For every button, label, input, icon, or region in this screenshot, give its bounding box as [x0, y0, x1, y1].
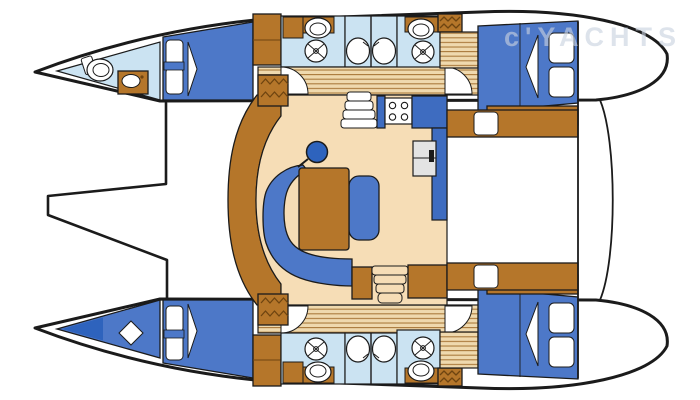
catamaran-floor-plan: c'YACHTS	[0, 0, 700, 400]
pillow	[166, 306, 183, 332]
shower-compartments-starboard	[345, 16, 397, 67]
forward-crossbeam	[48, 103, 167, 298]
pillow-strap	[164, 62, 184, 70]
cabin-entry-floor	[440, 32, 478, 68]
shower-tray	[373, 336, 396, 362]
shower-tray	[347, 336, 370, 362]
cockpit-step	[474, 265, 498, 288]
pillow	[549, 303, 574, 333]
pillow	[549, 337, 574, 367]
sink-icon	[305, 338, 327, 360]
galley-counter	[377, 96, 385, 128]
sink-icon	[412, 41, 434, 63]
saloon	[228, 75, 447, 325]
hull-steps-hatch	[438, 368, 462, 386]
pillow	[549, 67, 574, 97]
galley-counter	[412, 96, 447, 128]
step-cabinet	[408, 265, 447, 298]
shower-tray	[373, 38, 396, 64]
vanity-cabinet	[283, 362, 303, 383]
step-cabinet	[352, 267, 372, 299]
pillow	[166, 68, 183, 94]
fridge-icon	[413, 141, 436, 176]
chaise-seat	[349, 176, 379, 240]
shower-compartments-port	[345, 333, 397, 384]
hull-steps-hatch	[438, 14, 462, 32]
hull-access-steps-port	[258, 294, 288, 325]
mid-head-starboard-forward	[281, 16, 345, 67]
sink-icon	[412, 337, 434, 359]
pillow-strap	[164, 330, 184, 338]
aft-platform-curve	[600, 100, 613, 300]
hull-access-steps-starboard	[258, 75, 288, 106]
sink-cabinet-icon	[118, 71, 148, 94]
cockpit-bench-starboard	[447, 110, 578, 137]
companionway-steps	[352, 265, 447, 303]
vanity-cabinet	[283, 17, 303, 38]
shower-tray	[347, 38, 370, 64]
dinette-table	[299, 168, 349, 250]
cockpit-bench-port	[447, 263, 578, 290]
watermark-text: c'YACHTS	[504, 22, 682, 52]
mid-head-port-forward	[281, 333, 345, 384]
sink-icon	[305, 40, 327, 62]
floor-plan-svg: c'YACHTS	[0, 0, 700, 400]
stove-icon	[385, 98, 412, 124]
cockpit-step	[474, 112, 498, 135]
cabin-entry-floor	[440, 332, 478, 368]
